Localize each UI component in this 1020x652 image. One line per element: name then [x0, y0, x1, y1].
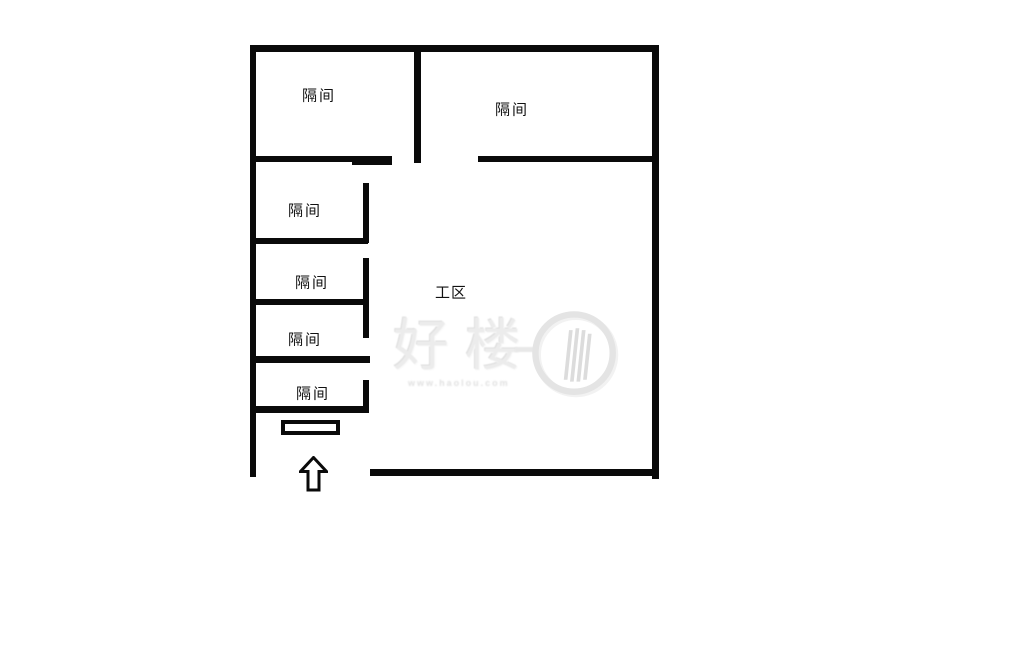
- room-label-cubicle-1: 隔间: [302, 85, 336, 106]
- entrance-arrow-icon: [299, 456, 328, 492]
- wall-top-rooms-divider: [414, 45, 421, 163]
- wall-cubicle5-bottom: [250, 406, 369, 413]
- watermark-dash: [515, 347, 537, 352]
- watermark: 好楼 www.haolou.com: [385, 305, 635, 405]
- entrance-door: [281, 420, 340, 435]
- watermark-brand-text: 好楼: [393, 319, 537, 375]
- wall-outer-bottom: [370, 469, 659, 476]
- wall-cubicle4-bottom: [250, 356, 370, 363]
- room-label-cubicle-2: 隔间: [495, 99, 529, 120]
- room-label-work-area: 工区: [435, 282, 467, 303]
- room-label-cubicle-5: 隔间: [288, 329, 322, 350]
- wall-toprow-bottom-right: [478, 156, 652, 162]
- watermark-url-text: www.haolou.com: [408, 378, 510, 388]
- room-label-cubicle-4: 隔间: [295, 272, 329, 293]
- wall-outer-right: [652, 45, 659, 479]
- wall-toprow-bottom-left-lip: [352, 156, 392, 165]
- wall-cubicle3-bottom: [250, 299, 368, 305]
- watermark-logo-icon: [528, 308, 622, 400]
- wall-cubicle4-right: [363, 305, 369, 338]
- wall-cubicle3-right: [363, 258, 369, 305]
- wall-cubicle2-bottom: [250, 238, 368, 244]
- wall-cubicle2-right: [363, 183, 369, 243]
- wall-outer-top: [250, 45, 658, 52]
- room-label-cubicle-3: 隔间: [288, 200, 322, 221]
- floorplan-canvas: 隔间 隔间 隔间 隔间 隔间 隔间 工区 好楼 www.haolou.com: [0, 0, 1020, 652]
- room-label-cubicle-6: 隔间: [296, 383, 330, 404]
